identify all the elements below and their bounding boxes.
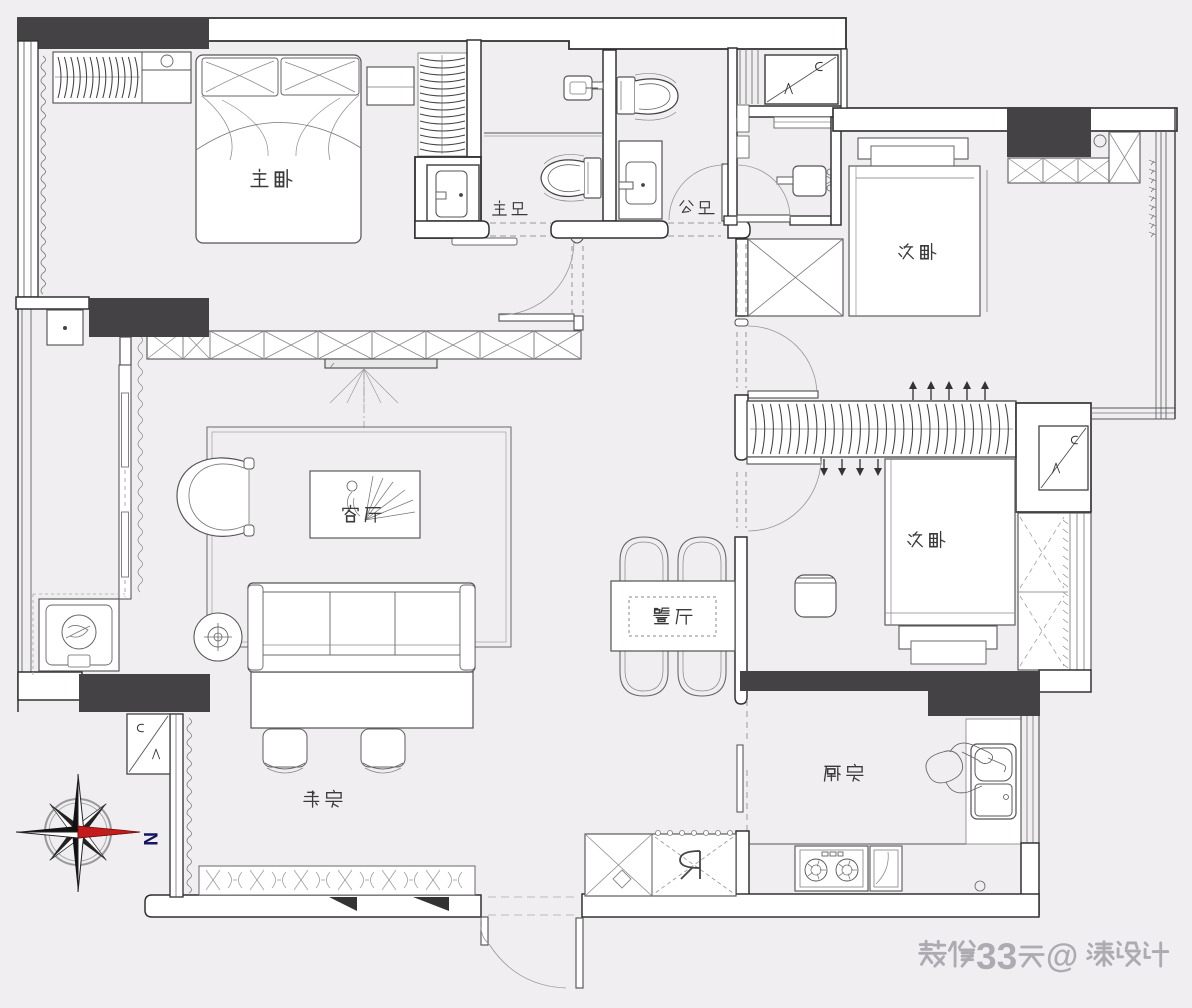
svg-text:33: 33 bbox=[976, 936, 1017, 977]
svg-text:@: @ bbox=[1046, 937, 1078, 974]
svg-text:N: N bbox=[139, 832, 160, 846]
